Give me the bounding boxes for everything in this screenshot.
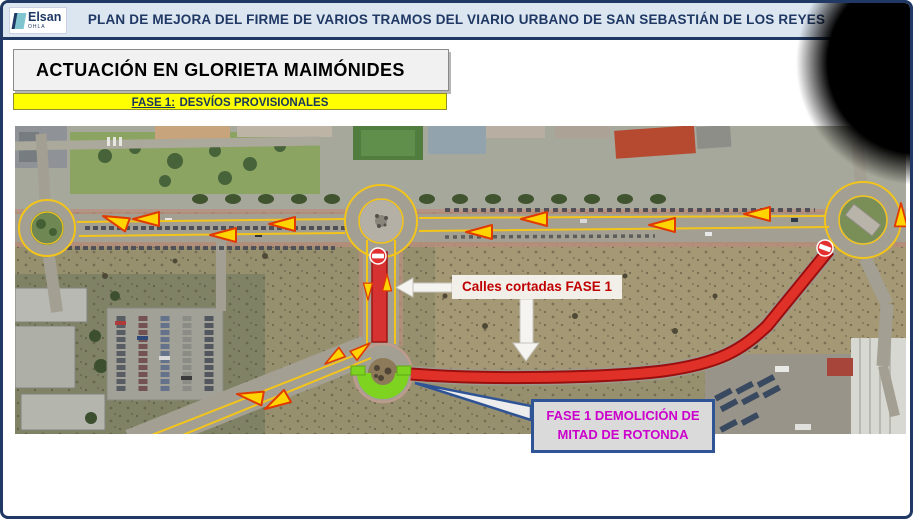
phase-label: FASE 1: xyxy=(132,97,175,109)
closed-streets-label: Calles cortadas FASE 1 xyxy=(452,275,622,299)
section-title: ACTUACIÓN EN GLORIETA MAIMÓNIDES xyxy=(36,60,405,81)
slide-page: Elsan OHLA PLAN DE MEJORA DEL FIRME DE V… xyxy=(0,0,913,519)
demolition-label-line1: FASE 1 DEMOLICIÓN DE xyxy=(536,407,710,426)
header-bar: Elsan OHLA PLAN DE MEJORA DEL FIRME DE V… xyxy=(3,3,910,40)
left-roundabout xyxy=(18,199,76,257)
section-title-box: ACTUACIÓN EN GLORIETA MAIMÓNIDES xyxy=(13,49,449,91)
redaction-blob xyxy=(796,0,913,185)
phase-text: DESVÍOS PROVISIONALES xyxy=(180,97,329,109)
demolition-label-line2: MITAD DE ROTONDA xyxy=(536,426,710,445)
center-roundabout xyxy=(344,184,418,258)
no-entry-icon xyxy=(370,248,386,264)
right-roundabout xyxy=(824,181,902,259)
document-title: PLAN DE MEJORA DEL FIRME DE VARIOS TRAMO… xyxy=(3,12,910,27)
phase-banner: FASE 1: DESVÍOS PROVISIONALES xyxy=(13,93,447,110)
demolition-label: FASE 1 DEMOLICIÓN DE MITAD DE ROTONDA xyxy=(531,399,715,453)
